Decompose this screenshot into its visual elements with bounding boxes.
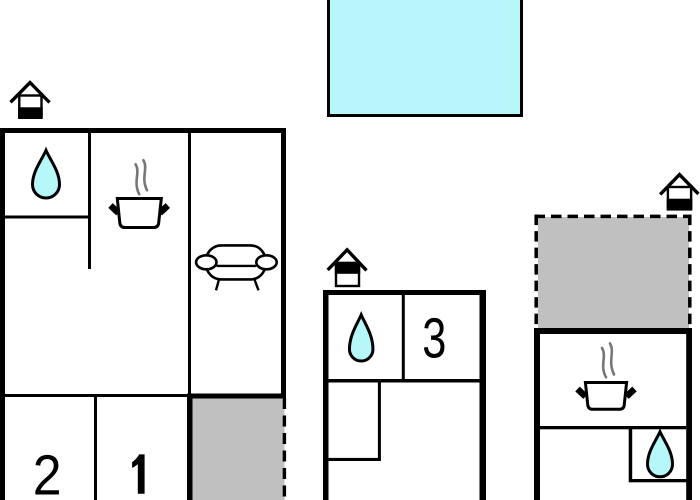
svg-text:2: 2 (33, 443, 62, 500)
svg-text:3: 3 (422, 306, 446, 370)
